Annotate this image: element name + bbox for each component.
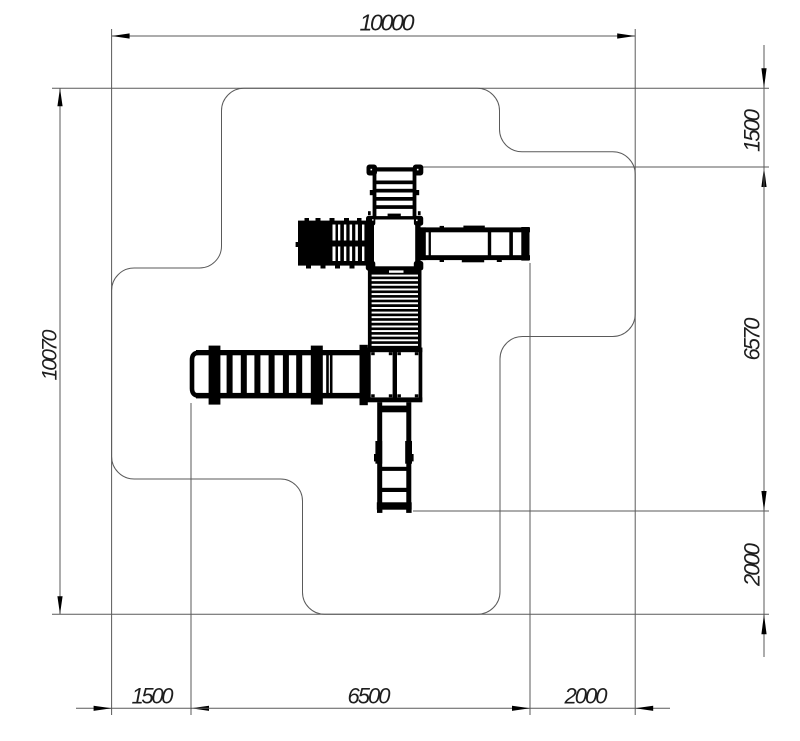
svg-text:6570: 6570	[740, 317, 765, 361]
svg-text:10000: 10000	[360, 10, 415, 36]
svg-text:2000: 2000	[564, 684, 609, 709]
svg-text:1500: 1500	[132, 684, 175, 709]
svg-text:10070: 10070	[38, 329, 62, 380]
svg-text:2000: 2000	[740, 542, 765, 587]
svg-text:6500: 6500	[348, 684, 392, 709]
svg-text:1500: 1500	[740, 108, 765, 152]
